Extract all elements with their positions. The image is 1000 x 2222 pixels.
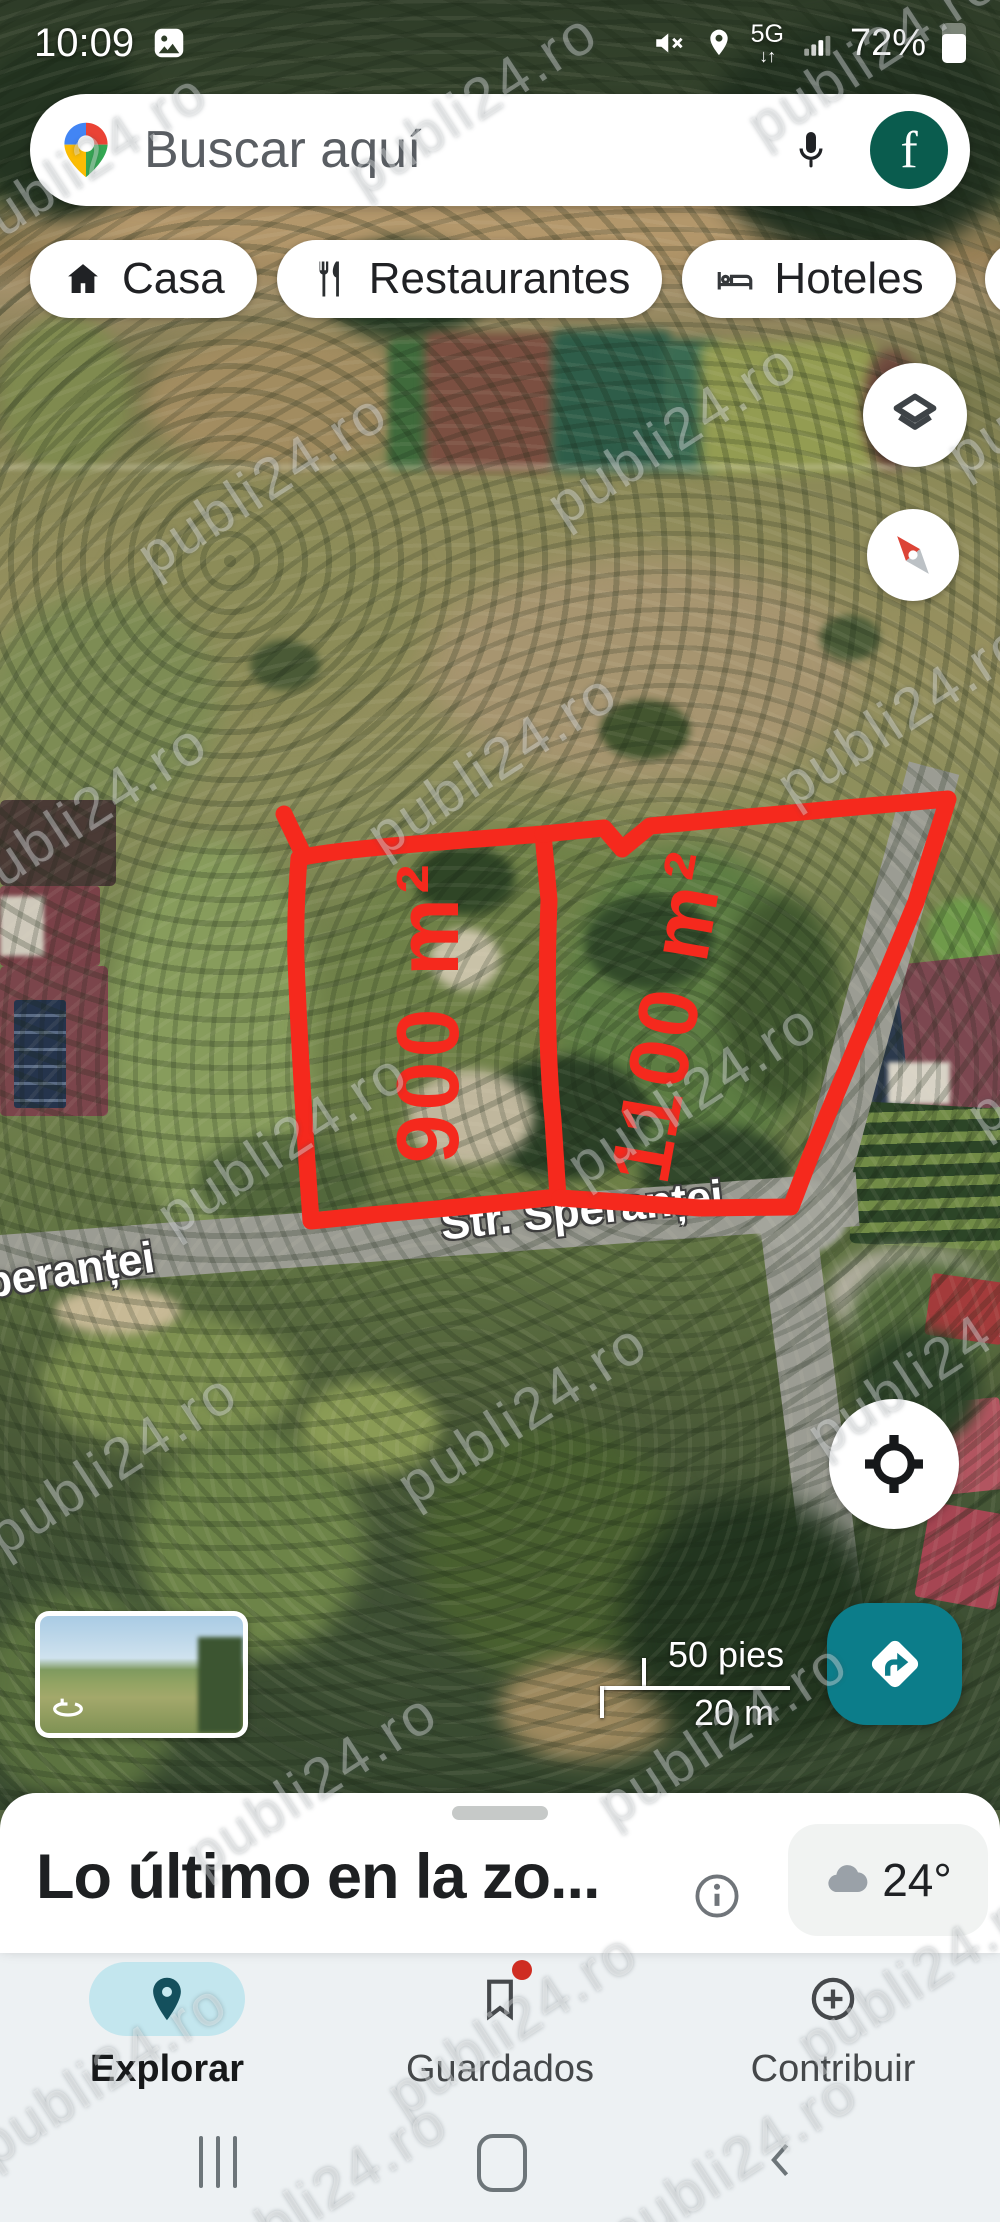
plot-area-label-left: 900 m²	[377, 861, 479, 1164]
recents-bar-icon	[199, 2136, 203, 2188]
nav-item-saved[interactable]: Guardados	[380, 1956, 620, 2091]
phone-screen: Str. Speranței peranței 900 m² 1100 m² 1…	[0, 0, 1000, 2222]
search-input[interactable]: Buscar aquí	[144, 120, 788, 180]
layers-icon	[888, 388, 942, 442]
chip-hotels[interactable]: Hoteles	[682, 240, 955, 318]
compass-button[interactable]	[867, 509, 959, 601]
scale-tick-up	[642, 1658, 646, 1688]
crosshair-icon	[857, 1427, 931, 1501]
recents-bar-icon	[216, 2136, 220, 2188]
streetview-photo	[40, 1616, 243, 1733]
bush	[720, 895, 840, 1105]
building-roof	[0, 800, 116, 886]
directions-fab[interactable]	[827, 1603, 962, 1725]
voice-search-icon[interactable]	[788, 127, 834, 173]
clock: 10:09	[34, 21, 134, 66]
temperature-label: 24°	[882, 1853, 952, 1907]
garden-plot	[0, 315, 130, 475]
scale-imperial-label: 50 pies	[668, 1634, 784, 1676]
garden-plot	[552, 330, 672, 472]
google-maps-pin-logo	[54, 118, 118, 182]
info-icon[interactable]	[690, 1869, 744, 1923]
data-arrows-icon: ↓↑	[759, 47, 775, 65]
network-type-indicator: 5G ↓↑	[751, 22, 784, 65]
chip-home[interactable]: Casa	[30, 240, 257, 318]
chip-restaurants[interactable]: Restaurantes	[277, 240, 663, 318]
terrain-patch	[300, 1380, 440, 1475]
bush	[820, 615, 880, 661]
system-navigation-bar	[0, 2105, 1000, 2222]
add-circle-icon	[806, 1972, 860, 2026]
chip-label: Casa	[122, 254, 225, 304]
cloud-icon	[824, 1856, 872, 1904]
annotation-tick	[284, 814, 304, 856]
360-loop-icon	[48, 1689, 88, 1729]
category-chips: Casa Restaurantes Hoteles	[30, 240, 956, 318]
scale-metric-label: 20 m	[694, 1692, 774, 1734]
bed-icon	[714, 258, 756, 300]
home-icon	[62, 258, 104, 300]
account-avatar[interactable]: f	[870, 111, 948, 189]
notification-dot	[512, 1960, 532, 1980]
sheet-drag-handle[interactable]	[452, 1806, 548, 1820]
search-bar[interactable]: Buscar aquí f	[30, 94, 970, 206]
solar-panels	[14, 1000, 66, 1108]
scale-line	[600, 1686, 790, 1690]
screenshot-notification-icon	[150, 24, 188, 62]
bookmark-icon	[474, 1973, 526, 2025]
garden-plot	[425, 333, 555, 471]
nav-item-explore[interactable]: Explorar	[47, 1956, 287, 2091]
bottom-sheet[interactable]: Lo último en la zo... 24°	[0, 1793, 1000, 1953]
my-location-button[interactable]	[829, 1399, 959, 1529]
fence-line	[0, 464, 1000, 470]
courtyard	[0, 896, 44, 956]
battery-icon	[942, 23, 966, 63]
nav-item-contribute[interactable]: Contribuir	[713, 1956, 953, 2091]
vineyard-rows	[849, 1101, 1000, 1251]
recents-bar-icon	[233, 2136, 237, 2188]
chip-label: Hoteles	[774, 254, 923, 304]
compass-needle-icon	[872, 514, 954, 596]
explore-pin-icon	[141, 1973, 193, 2025]
directions-icon	[857, 1626, 933, 1702]
chip-label: Restaurantes	[369, 254, 631, 304]
weather-chip[interactable]: 24°	[788, 1824, 988, 1936]
back-chevron-icon	[760, 2134, 804, 2186]
nav-label-explore: Explorar	[90, 2048, 244, 2091]
battery-percent: 72%	[850, 22, 926, 65]
scale-tick-down	[600, 1686, 604, 1718]
location-active-icon	[703, 27, 735, 59]
mute-icon	[651, 25, 687, 61]
restaurant-icon	[309, 258, 351, 300]
bush	[250, 640, 320, 690]
sheet-title: Lo último en la zo...	[36, 1841, 600, 1913]
road-bend	[752, 1178, 848, 1254]
nav-label-contribute: Contribuir	[751, 2048, 916, 2091]
streetview-trees	[198, 1637, 243, 1733]
patio	[888, 1062, 950, 1104]
garden-plot	[145, 330, 415, 470]
nav-label-saved: Guardados	[406, 2048, 594, 2091]
status-bar: 10:09 5G ↓↑ 72%	[0, 0, 1000, 86]
layers-button[interactable]	[863, 363, 967, 467]
bush	[600, 700, 690, 760]
streetview-thumbnail[interactable]	[35, 1611, 248, 1738]
signal-strength-icon	[800, 26, 834, 60]
home-button[interactable]	[477, 2134, 527, 2192]
garden-plot	[700, 342, 875, 474]
back-button[interactable]	[760, 2134, 804, 2186]
